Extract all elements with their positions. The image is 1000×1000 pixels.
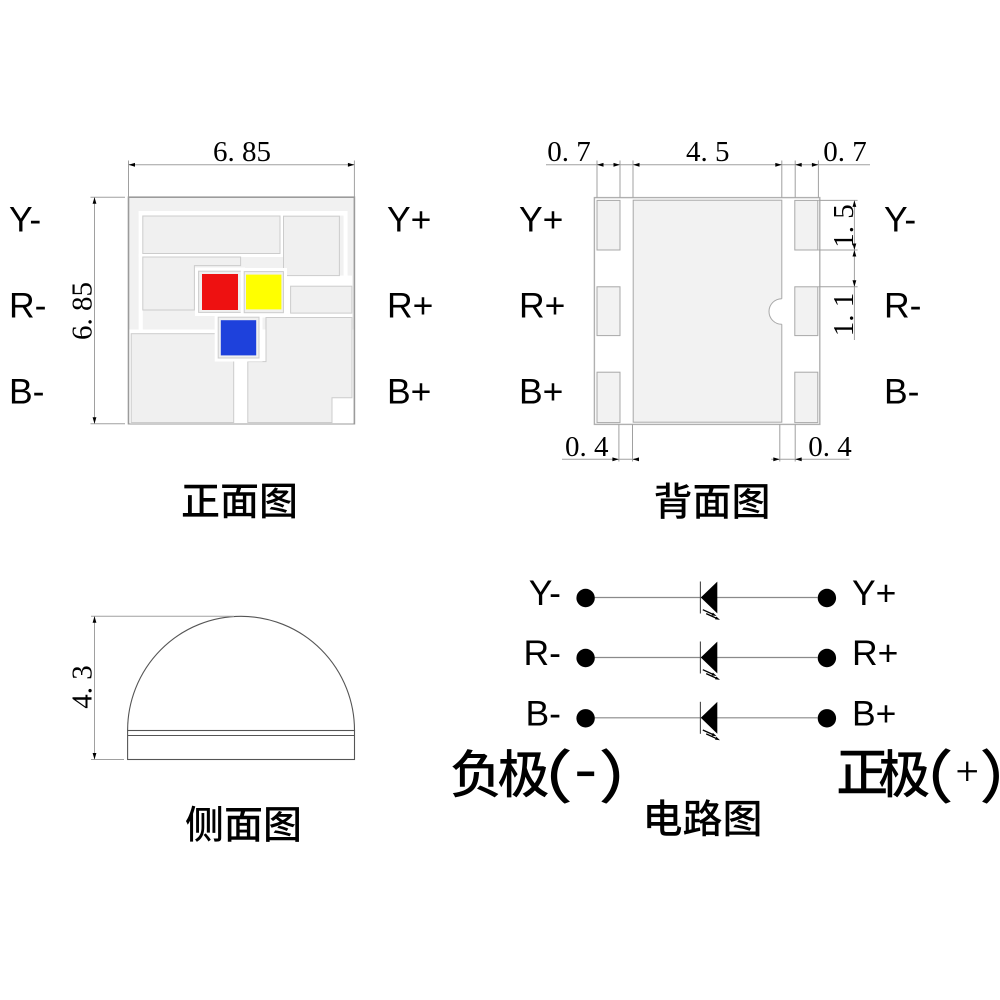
svg-text:Y+: Y+	[519, 200, 563, 240]
svg-text:Y-: Y-	[529, 573, 561, 613]
svg-text:B-: B-	[884, 372, 920, 412]
svg-text:6. 85: 6. 85	[213, 136, 271, 168]
svg-text:Y-: Y-	[9, 200, 41, 240]
svg-text:R-: R-	[9, 286, 46, 326]
svg-text:B+: B+	[852, 693, 896, 733]
svg-text:1. 5: 1. 5	[828, 204, 860, 248]
svg-text:4. 3: 4. 3	[67, 665, 99, 709]
svg-text:Y+: Y+	[387, 200, 431, 240]
svg-text:Y-: Y-	[884, 200, 916, 240]
svg-text:0. 4: 0. 4	[808, 431, 852, 463]
svg-text:4. 5: 4. 5	[686, 136, 730, 168]
svg-text:B-: B-	[9, 372, 45, 412]
svg-text:R+: R+	[387, 286, 433, 326]
svg-text:0. 4: 0. 4	[565, 431, 609, 463]
svg-text:R-: R-	[884, 286, 921, 326]
svg-text:R-: R-	[524, 633, 561, 673]
svg-text:R+: R+	[519, 286, 565, 326]
svg-text:1. 1: 1. 1	[828, 293, 860, 337]
svg-text:0. 7: 0. 7	[547, 136, 591, 168]
svg-text:6. 85: 6. 85	[67, 282, 99, 340]
svg-text:Y+: Y+	[852, 573, 896, 613]
svg-text:R+: R+	[852, 633, 898, 673]
svg-text:B-: B-	[526, 693, 562, 733]
svg-text:B+: B+	[387, 372, 431, 412]
svg-text:0. 7: 0. 7	[823, 136, 867, 168]
svg-text:B+: B+	[519, 372, 563, 412]
